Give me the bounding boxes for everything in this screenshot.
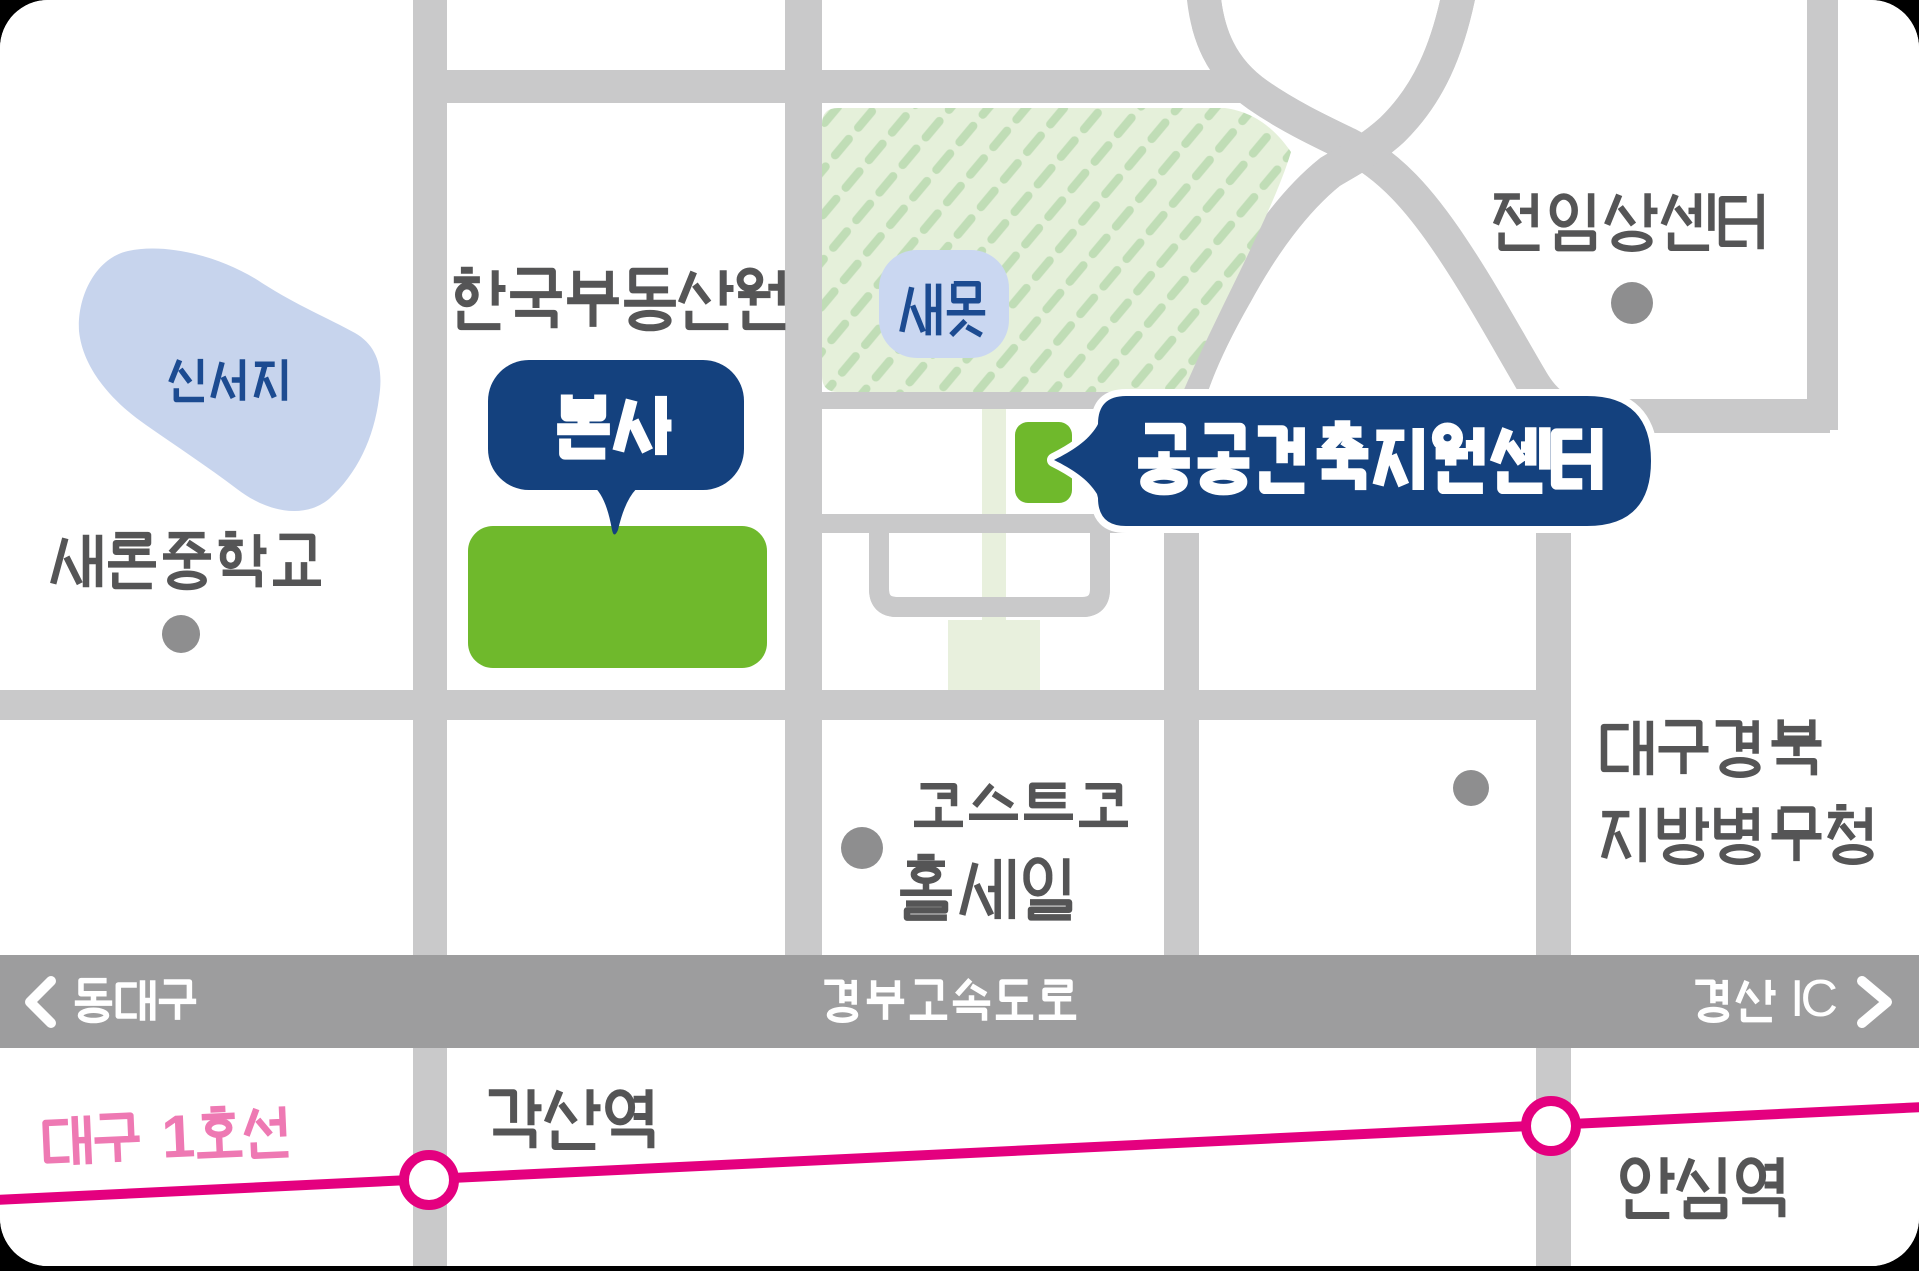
svg-text:1: 1 [160, 1102, 196, 1170]
svg-text:IC: IC [1790, 970, 1836, 1028]
